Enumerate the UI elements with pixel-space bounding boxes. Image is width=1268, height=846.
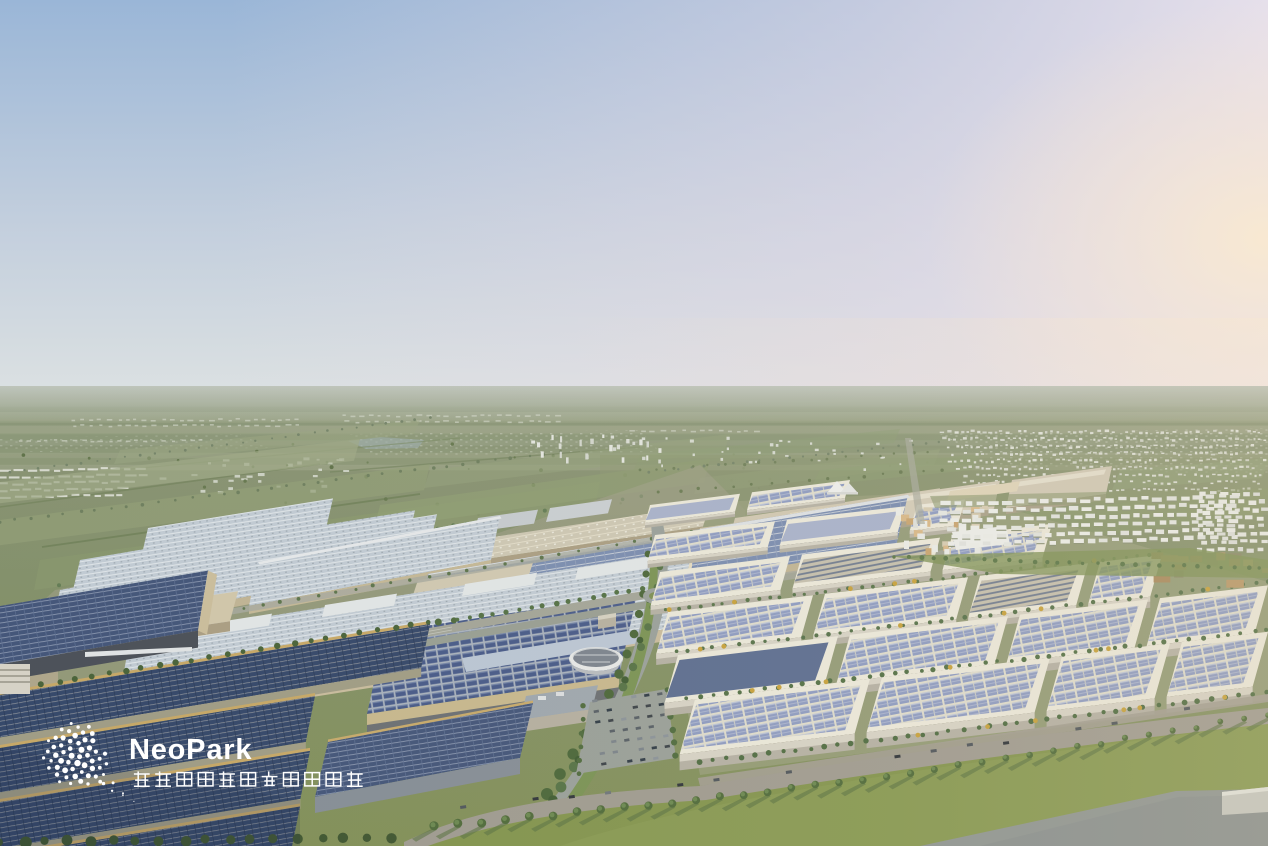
svg-text:NeoPark: NeoPark bbox=[129, 734, 252, 766]
